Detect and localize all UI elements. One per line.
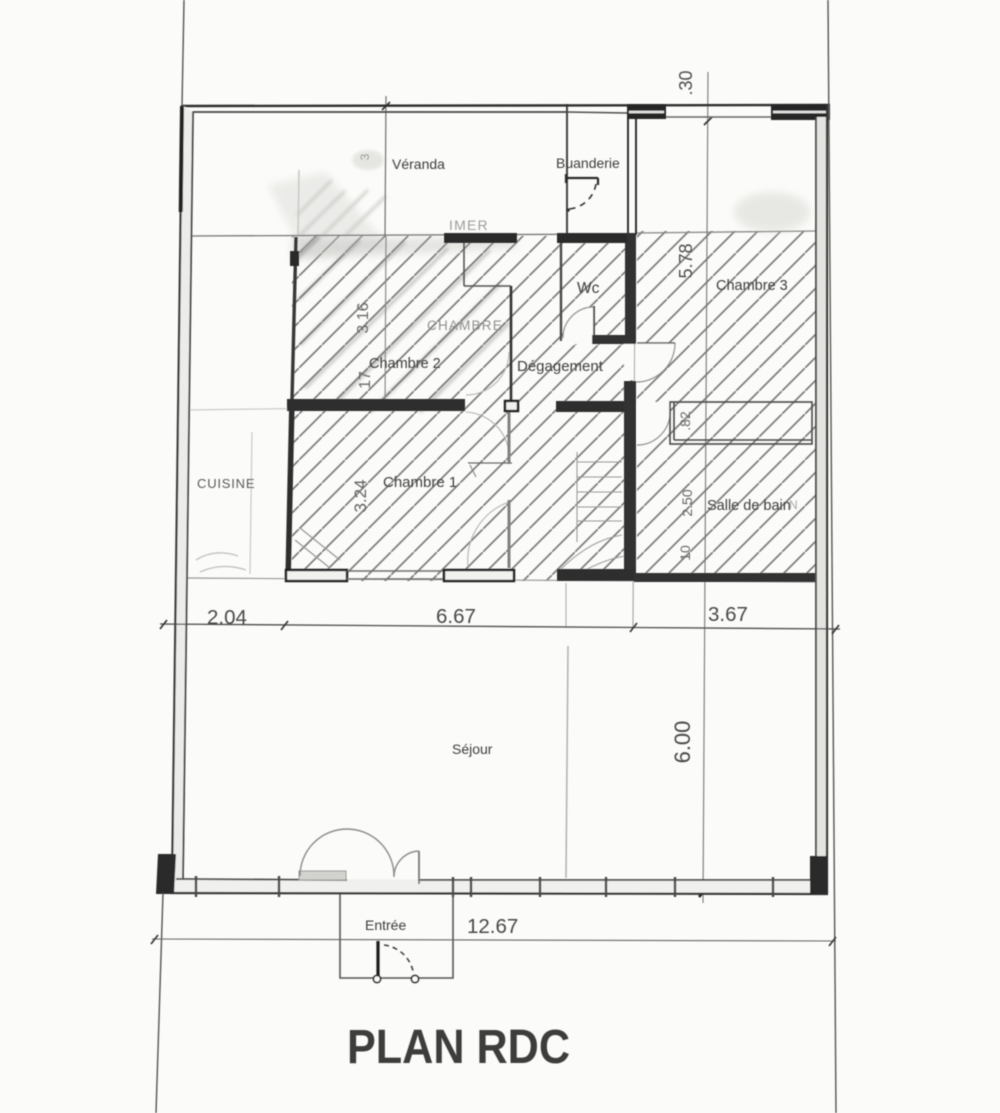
svg-text:2.50: 2.50 (679, 489, 695, 516)
svg-text:Chambre 2: Chambre 2 (369, 356, 441, 372)
svg-text:10: 10 (677, 545, 693, 561)
svg-text:3: 3 (358, 153, 372, 160)
svg-text:3.24: 3.24 (351, 479, 370, 512)
svg-text:CUISINE: CUISINE (197, 476, 255, 491)
svg-text:2.04: 2.04 (207, 606, 247, 629)
svg-text:Buanderie: Buanderie (556, 155, 620, 171)
svg-text:Séjour: Séjour (452, 741, 493, 757)
svg-text:3.67: 3.67 (708, 603, 748, 626)
svg-text:6.00: 6.00 (670, 721, 695, 764)
svg-text:Chambre 1: Chambre 1 (383, 474, 457, 491)
svg-text:PLAN RDC: PLAN RDC (347, 1020, 570, 1074)
svg-text:Chambre 3: Chambre 3 (716, 278, 788, 294)
svg-text:IMER: IMER (449, 217, 489, 233)
svg-text:3.16: 3.16 (355, 302, 372, 333)
svg-text:CHAMBRE: CHAMBRE (427, 318, 503, 333)
svg-text:N: N (789, 498, 798, 512)
svg-text:12.67: 12.67 (467, 915, 518, 938)
svg-text:.82: .82 (677, 411, 693, 431)
svg-text:Véranda: Véranda (392, 156, 445, 172)
svg-text:6.67: 6.67 (436, 605, 476, 628)
svg-text:.30: .30 (676, 70, 696, 95)
svg-text:Wc: Wc (577, 280, 600, 297)
svg-text:Entrée: Entrée (365, 917, 406, 933)
svg-text:Dégagement: Dégagement (517, 358, 604, 375)
svg-text:5.78: 5.78 (676, 243, 696, 278)
svg-text:17: 17 (357, 371, 374, 389)
svg-text:Salle de bain: Salle de bain (707, 498, 791, 514)
